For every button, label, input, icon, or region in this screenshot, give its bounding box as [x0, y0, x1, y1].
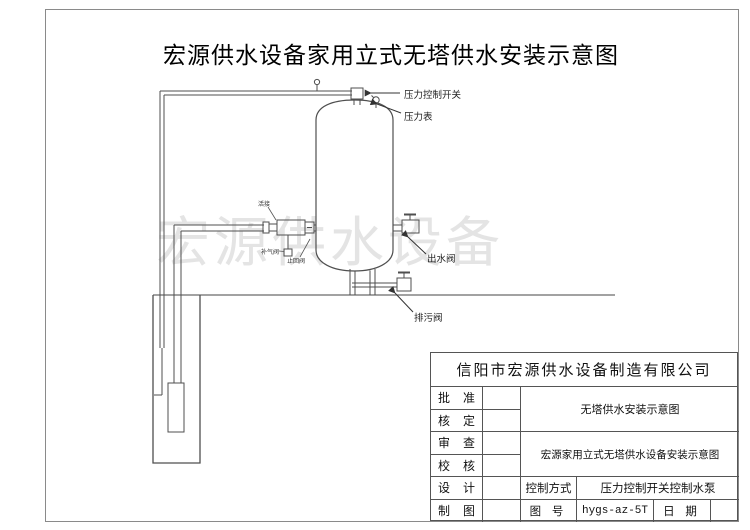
tb-drawing-no: hygs-az-5T [577, 500, 654, 523]
union-fitting-icon [263, 222, 277, 233]
label-pressure-switch: 压力控制开关 [404, 87, 461, 101]
label-outlet-valve: 出水阀 [427, 251, 456, 265]
label-pressure-gauge: 压力表 [404, 109, 433, 123]
tb-control-value: 压力控制开关控制水泵 [577, 477, 739, 500]
tb-sign-draft [483, 500, 521, 523]
tb-sign-approve [483, 387, 521, 410]
label-drain-valve: 排污阀 [414, 310, 443, 324]
pressure-switch-icon [351, 88, 363, 105]
check-valve-icon [277, 220, 316, 235]
tb-sign-design [483, 477, 521, 500]
pressure-pipe [160, 79, 352, 95]
tb-sign-proof [483, 455, 521, 478]
tb-sign-review [483, 432, 521, 455]
tb-label-draft: 制 图 [431, 500, 483, 523]
label-union: 活接 [258, 199, 270, 208]
callout-arrows [371, 93, 426, 312]
submersible-pump [168, 383, 184, 432]
tank-legs [350, 269, 375, 295]
tb-sign-verify [483, 410, 521, 433]
tb-label-verify: 核 定 [431, 410, 483, 433]
tb-drawing-no-label: 图 号 [521, 500, 577, 523]
tb-label-review: 审 查 [431, 432, 483, 455]
air-vent-icon [314, 79, 319, 84]
tb-label-design: 设 计 [431, 477, 483, 500]
tb-date-value [711, 500, 739, 523]
label-check-valve: 止回阀 [287, 256, 305, 265]
tb-label-approve: 批 准 [431, 387, 483, 410]
drain-valve-icon [352, 273, 411, 292]
tb-control-label: 控制方式 [521, 477, 577, 500]
company-name: 信阳市宏源供水设备制造有限公司 [431, 353, 737, 387]
pressure-tank [316, 100, 393, 271]
drawing-sheet: 宏源供水设备 宏源供水设备家用立式无塔供水安装示意图 [0, 0, 750, 530]
riser-pipe [174, 225, 264, 383]
title-block: 信阳市宏源供水设备制造有限公司 批 准 核 定 审 查 校 核 设 计 制 图 … [430, 352, 738, 521]
pump-cable [154, 91, 164, 395]
air-charge-valve-icon [284, 235, 292, 256]
title-block-body: 批 准 核 定 审 查 校 核 设 计 制 图 无塔供水安装示意图 宏源家用立式… [431, 387, 737, 520]
label-air-valve: 补气阀 [261, 247, 279, 256]
tb-date-label: 日 期 [654, 500, 711, 523]
tb-doc-title-1: 无塔供水安装示意图 [521, 387, 739, 432]
tb-doc-title-2: 宏源家用立式无塔供水设备安装示意图 [521, 432, 739, 477]
tb-label-proof: 校 核 [431, 455, 483, 478]
outlet-valve-icon [393, 215, 419, 234]
